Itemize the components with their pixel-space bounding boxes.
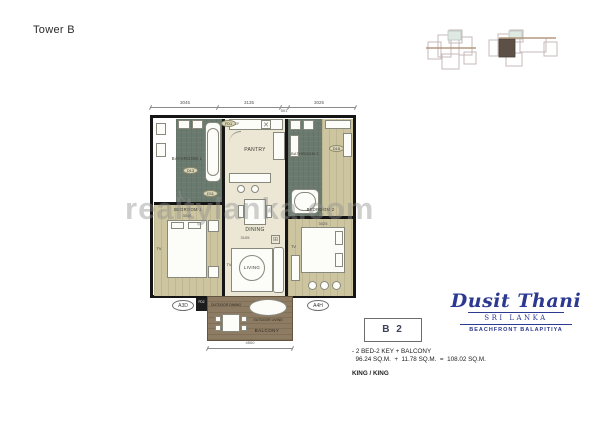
outdoor-living-label: OUTDOOR LIVING [249, 318, 287, 323]
dim-top-3: 3025 [293, 100, 345, 105]
shower-fixture [192, 120, 203, 129]
dim-top-2: 3135 [223, 100, 275, 105]
pantry-bar-counter [229, 173, 271, 183]
outdoor-daybed [249, 299, 287, 316]
dining-label: DINING [225, 227, 285, 233]
pillow [335, 231, 343, 245]
watermark: realtylanka.com [125, 191, 374, 227]
floorplan-page: { "page": { "title": "Tower B" }, "water… [0, 0, 600, 424]
outdoor-chair [215, 316, 221, 322]
brand-logo-text: Dusit Thani [430, 291, 600, 311]
pillow [335, 253, 343, 267]
tv2-label: TV [225, 263, 233, 268]
unit-bed-config: KING / KING [352, 370, 389, 377]
vanity-fixture [156, 143, 166, 157]
balcony-label: BALCONY [245, 329, 289, 334]
pouf-stool [332, 281, 341, 290]
sofa [273, 247, 284, 293]
brand-tagline: BEACHFRONT BALAPITIYA [430, 326, 600, 334]
tv3-label: TV [289, 245, 298, 250]
dim-top-small: 501 [275, 109, 293, 114]
tv1-label: TV [154, 247, 164, 252]
bathroom1-label: BATHROOM 1 [152, 156, 222, 162]
outdoor-chair [215, 325, 221, 331]
dimension-line-top [150, 107, 356, 108]
door-tag-d13: D13 [183, 167, 198, 174]
brand-rule [460, 324, 572, 325]
outdoor-dining-label: OUTDOOR DINING [209, 303, 243, 308]
pouf-stool [320, 281, 329, 290]
minibar-cabinet [291, 255, 300, 281]
dim-tick [291, 346, 294, 351]
unit-description: - 2 BED-2 KEY + BALCONY 96.24 SQ.M. + 11… [352, 348, 486, 364]
wardrobe [343, 133, 352, 157]
unit-tag-a4h: A4H [307, 300, 329, 311]
living-label: LIVING [225, 265, 279, 271]
pouf-stool [308, 281, 317, 290]
brand-block: Dusit Thani SRI LANKA BEACHFRONT BALAPIT… [430, 291, 600, 334]
unit-tag-a3d: A3D [172, 300, 194, 311]
page-title: Tower B [33, 24, 75, 36]
pantry-counter-side [273, 132, 285, 160]
outdoor-chair [241, 316, 247, 322]
unit-type-line: - 2 BED-2 KEY + BALCONY [352, 348, 431, 355]
living-dimension: 3105 [233, 236, 257, 241]
sink-fixture [178, 120, 190, 129]
door-tag-d15: D15 [329, 145, 344, 152]
side-table-icon: ⊞ [271, 235, 280, 244]
dim-top-1: 3045 [159, 100, 211, 105]
dim-tick [354, 105, 357, 110]
pantry-label: PANTRY [225, 147, 285, 153]
dim-bottom: 4500 [225, 340, 275, 345]
unit-code-box: B 2 [364, 318, 422, 342]
wc-fixture [156, 123, 166, 135]
stove-icon: ✕ [261, 120, 271, 129]
wardrobe [325, 120, 351, 129]
bathtub1-basin [207, 128, 219, 176]
door-tag-fd1: FD1 [221, 120, 236, 127]
brand-location: SRI LANKA [430, 314, 600, 323]
bathroom2-label: BATHROOM 2 [285, 151, 325, 157]
outdoor-dining-table [222, 314, 240, 332]
unit-area-line: 96.24 SQ.M. + 11.78 SQ.M. = 108.02 SQ.M. [352, 356, 486, 363]
dimension-line-bottom [207, 348, 293, 349]
keyplan-outline-icon [424, 26, 486, 78]
fd2-box: FD2 [196, 298, 207, 311]
brand-rule [468, 312, 564, 313]
nightstand [208, 266, 219, 278]
sink-fixture [303, 120, 314, 130]
wc-fixture [290, 120, 301, 130]
keyplan-unit-location-icon [486, 26, 560, 72]
